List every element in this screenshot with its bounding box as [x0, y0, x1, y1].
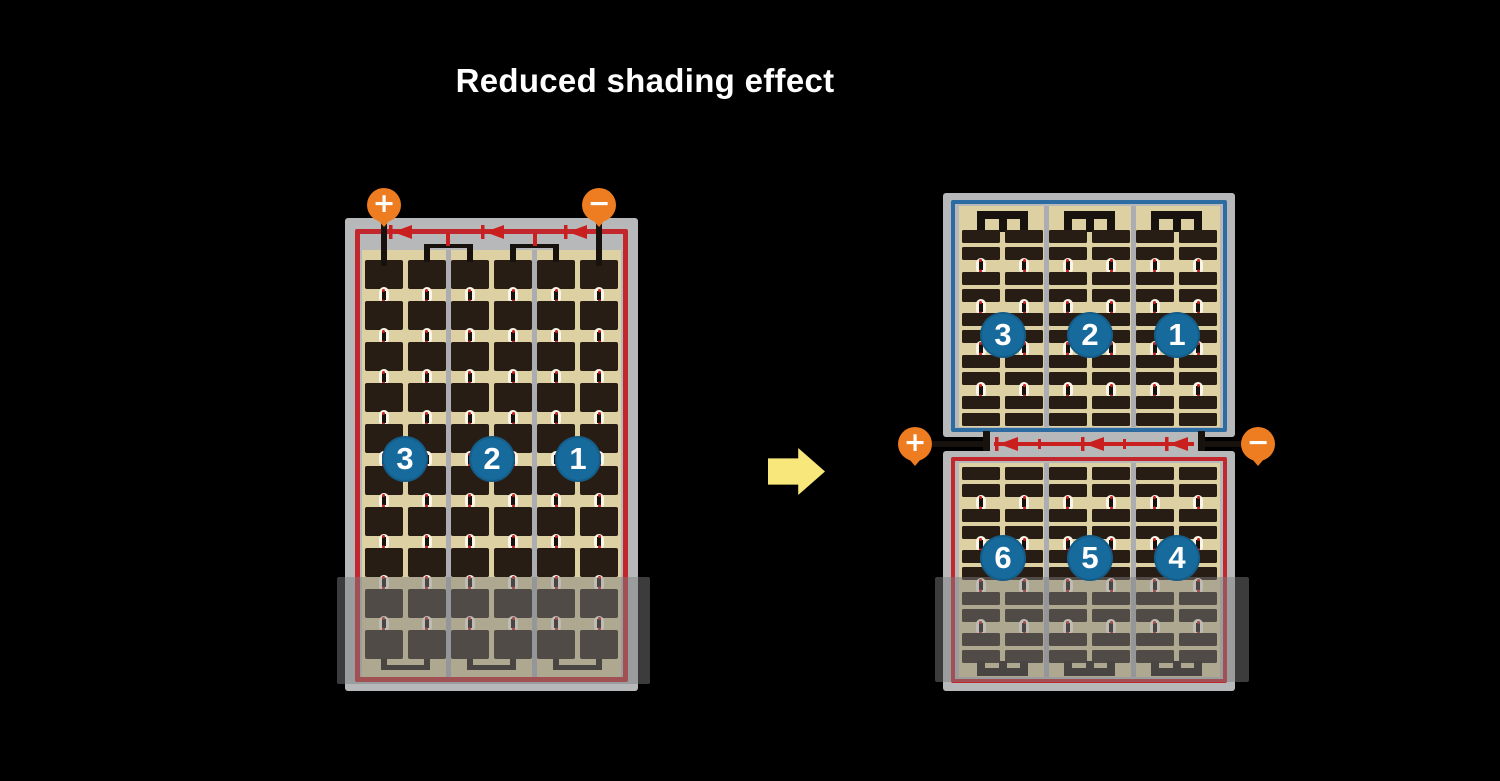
plus-icon: + [373, 189, 396, 219]
solar-cell [580, 301, 618, 330]
solar-cell [408, 260, 446, 289]
string-circle-left-3: 3 [382, 436, 428, 482]
solar-cell [408, 548, 446, 577]
solar-cell [537, 548, 575, 577]
solar-cell [365, 383, 403, 412]
half-cell [1136, 396, 1174, 409]
modules-graphics-layer [0, 0, 1500, 781]
string-circle-left-1: 1 [555, 436, 601, 482]
half-cell [1005, 467, 1043, 480]
solar-cell [537, 507, 575, 536]
solar-cell [365, 507, 403, 536]
half-cell [1136, 509, 1174, 522]
solar-cell [365, 548, 403, 577]
diode-tap [446, 233, 450, 246]
half-cell [1092, 509, 1130, 522]
solar-cell [580, 383, 618, 412]
half-cell [1136, 230, 1174, 243]
solar-cell [537, 301, 575, 330]
solar-cell [408, 301, 446, 330]
string-interconnect [467, 248, 473, 262]
solar-cell [451, 383, 489, 412]
half-cell [1136, 467, 1174, 480]
diode-tap [533, 233, 537, 246]
minus-icon: − [1247, 428, 1270, 458]
column-divider [1131, 206, 1136, 427]
solar-cell [408, 507, 446, 536]
solar-cell [451, 301, 489, 330]
half-cell [1179, 509, 1217, 522]
right-positive-terminal: + [898, 427, 932, 461]
diode-tap [1038, 439, 1041, 449]
half-cell [1005, 413, 1043, 426]
figure-canvas: Reduced shading effect + − + − 3 2 1 3 2… [0, 0, 1500, 781]
bypass-diode-icon [480, 224, 506, 240]
solar-cell [408, 342, 446, 371]
left-positive-terminal: + [367, 188, 401, 222]
string-interconnect [1064, 211, 1116, 219]
bypass-diode-icon [1164, 436, 1190, 452]
solar-cell [408, 383, 446, 412]
string-circle-top-1: 1 [1154, 312, 1200, 358]
solar-cell [494, 383, 532, 412]
solar-cell [451, 548, 489, 577]
half-cell [962, 272, 1000, 285]
solar-cell [580, 507, 618, 536]
string-circle-top-3: 3 [980, 312, 1026, 358]
string-interconnect [510, 248, 516, 262]
half-cell [1092, 413, 1130, 426]
half-cell [1005, 230, 1043, 243]
plus-icon: + [904, 428, 927, 458]
half-cell [1179, 467, 1217, 480]
solar-cell [451, 260, 489, 289]
string-circle-top-2: 2 [1067, 312, 1113, 358]
string-interconnect [977, 211, 1029, 219]
diode-tap [1123, 439, 1126, 449]
string-circle-bottom-5: 5 [1067, 535, 1113, 581]
solar-cell [365, 301, 403, 330]
string-interconnect [424, 248, 430, 262]
half-cell [1179, 230, 1217, 243]
terminal-lead [932, 441, 983, 447]
bypass-diode-icon [563, 224, 589, 240]
half-cell [1092, 396, 1130, 409]
string-interconnect [553, 248, 559, 262]
left-shade-overlay [337, 577, 650, 684]
half-cell [1049, 413, 1087, 426]
solar-cell [494, 507, 532, 536]
half-cell [962, 467, 1000, 480]
half-cell [1005, 509, 1043, 522]
half-cell [1092, 230, 1130, 243]
minus-icon: − [588, 189, 611, 219]
terminal-lead [1205, 441, 1243, 447]
string-interconnect [1151, 211, 1203, 219]
solar-cell [537, 260, 575, 289]
half-cell [962, 413, 1000, 426]
half-cell [1049, 396, 1087, 409]
bypass-diode-icon [1080, 436, 1106, 452]
half-cell [1136, 272, 1174, 285]
half-cell [1005, 272, 1043, 285]
left-negative-terminal: − [582, 188, 616, 222]
string-circle-bottom-4: 4 [1154, 535, 1200, 581]
solar-cell [537, 342, 575, 371]
solar-cell [451, 342, 489, 371]
solar-cell [580, 342, 618, 371]
half-cell [1049, 467, 1087, 480]
half-cell [1092, 272, 1130, 285]
solar-cell [494, 301, 532, 330]
half-cell [1179, 396, 1217, 409]
string-circle-bottom-6: 6 [980, 535, 1026, 581]
solar-cell [494, 260, 532, 289]
half-cell [1049, 509, 1087, 522]
half-cell [1179, 413, 1217, 426]
half-cell [962, 509, 1000, 522]
half-cell [1005, 396, 1043, 409]
solar-cell [494, 548, 532, 577]
solar-cell [580, 548, 618, 577]
solar-cell [494, 342, 532, 371]
half-cell [1092, 467, 1130, 480]
string-circle-left-2: 2 [469, 436, 515, 482]
half-cell [1049, 230, 1087, 243]
solar-cell [451, 507, 489, 536]
column-divider [1044, 206, 1049, 427]
solar-cell [365, 342, 403, 371]
half-cell [1049, 272, 1087, 285]
right-negative-terminal: − [1241, 427, 1275, 461]
bypass-diode-icon [994, 436, 1020, 452]
half-cell [962, 396, 1000, 409]
right-shade-overlay [935, 577, 1249, 682]
half-cell [1179, 272, 1217, 285]
half-cell [1136, 413, 1174, 426]
solar-cell [537, 383, 575, 412]
bypass-diode-icon [388, 224, 414, 240]
half-cell [962, 230, 1000, 243]
